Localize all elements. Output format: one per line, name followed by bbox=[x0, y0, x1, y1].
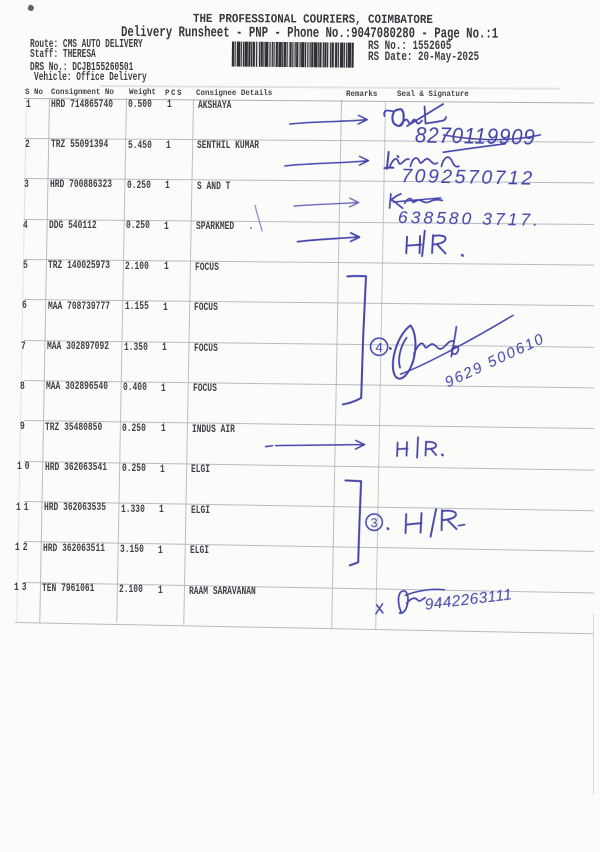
svg-text:7092570712: 7092570712 bbox=[401, 165, 535, 190]
svg-text:9629 500610: 9629 500610 bbox=[442, 330, 548, 391]
svg-text:8270119909: 8270119909 bbox=[415, 123, 536, 150]
svg-text:638580 3717.: 638580 3717. bbox=[398, 207, 541, 230]
svg-text:9442263111: 9442263111 bbox=[424, 586, 513, 613]
svg-text:3: 3 bbox=[371, 516, 378, 530]
svg-text:4: 4 bbox=[375, 340, 383, 355]
